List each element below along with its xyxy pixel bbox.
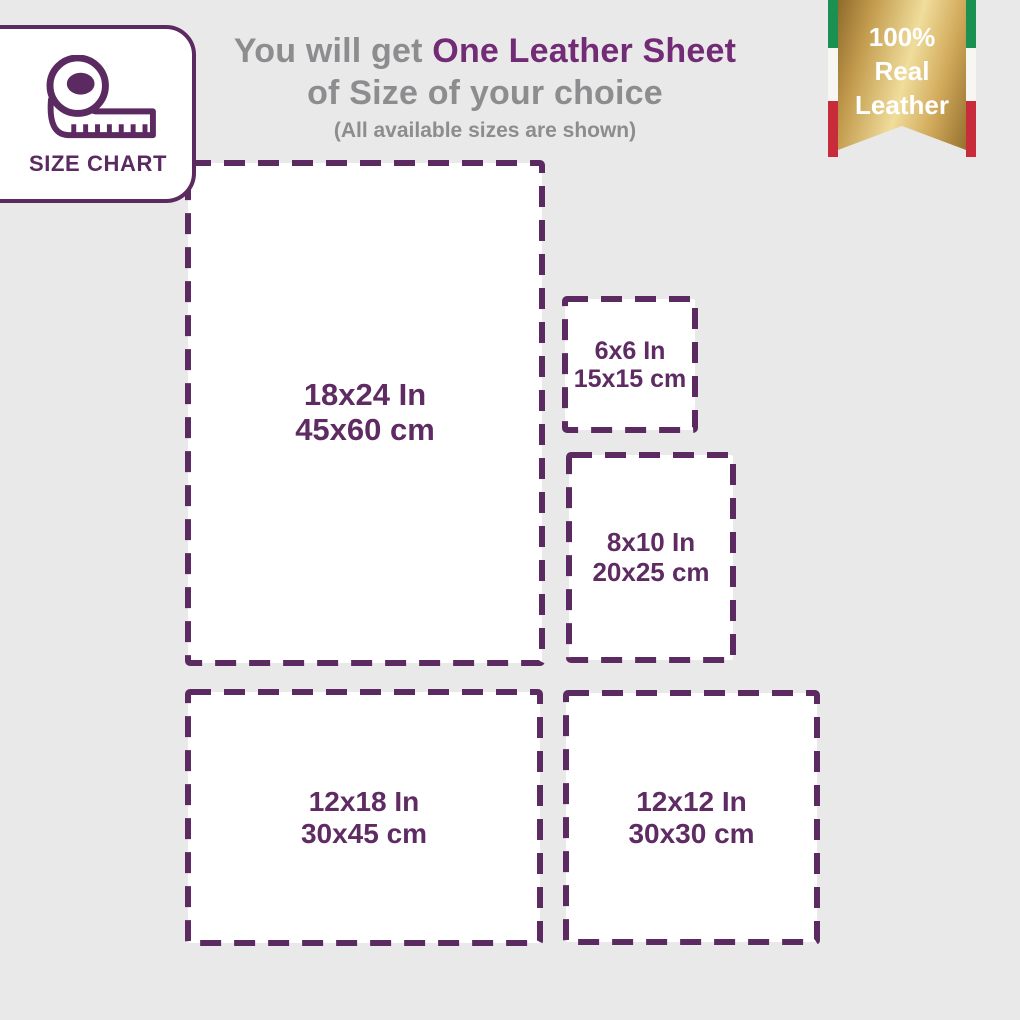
ribbon-line-2: Real (838, 54, 966, 88)
title-block: You will get One Leather Sheet of Size o… (160, 30, 810, 143)
size-inches: 8x10 In (607, 528, 695, 557)
size-inches: 12x18 In (309, 786, 420, 817)
flag-green-segment (966, 0, 976, 48)
italian-flag-stripe-right (966, 0, 976, 157)
size-inches: 18x24 In (304, 378, 426, 413)
size-cm: 30x30 cm (628, 818, 754, 849)
flag-red-segment (966, 101, 976, 157)
size-chart-infographic: You will get One Leather Sheet of Size o… (0, 0, 1020, 1020)
title-line-1: You will get One Leather Sheet (160, 30, 810, 72)
size-box-6x6: 6x6 In 15x15 cm (562, 296, 698, 433)
flag-green-segment (828, 0, 838, 48)
size-label-8x10: 8x10 In 20x25 cm (566, 452, 736, 663)
size-label-18x24: 18x24 In 45x60 cm (185, 160, 545, 666)
size-cm: 30x45 cm (301, 818, 427, 849)
flag-red-segment (828, 101, 838, 157)
size-chart-label: SIZE CHART (29, 151, 167, 177)
title-prefix: You will get (234, 32, 432, 70)
size-label-12x18: 12x18 In 30x45 cm (185, 689, 543, 946)
size-box-18x24: 18x24 In 45x60 cm (185, 160, 545, 666)
size-label-12x12: 12x12 In 30x30 cm (563, 690, 820, 945)
size-chart-card-content: SIZE CHART (4, 29, 192, 199)
ribbon-line-3: Leather (838, 88, 966, 122)
measuring-tape-icon (36, 55, 160, 149)
title-line-2: of Size of your choice (160, 72, 810, 114)
size-cm: 45x60 cm (295, 413, 435, 448)
size-inches: 6x6 In (595, 337, 666, 365)
size-inches: 12x12 In (636, 786, 747, 817)
size-chart-card: SIZE CHART (0, 25, 196, 203)
size-label-6x6: 6x6 In 15x15 cm (562, 296, 698, 433)
flag-white-segment (966, 48, 976, 101)
flag-white-segment (828, 48, 838, 101)
size-box-8x10: 8x10 In 20x25 cm (566, 452, 736, 663)
italian-flag-stripe-left (828, 0, 838, 157)
title-subtitle: (All available sizes are shown) (160, 119, 810, 143)
size-cm: 20x25 cm (592, 558, 709, 587)
ribbon-line-1: 100% (838, 20, 966, 54)
real-leather-ribbon: 100% Real Leather (828, 0, 976, 160)
size-cm: 15x15 cm (574, 365, 687, 393)
gold-banner: 100% Real Leather (838, 0, 966, 150)
size-box-12x12: 12x12 In 30x30 cm (563, 690, 820, 945)
title-highlight: One Leather Sheet (432, 32, 736, 70)
size-box-12x18: 12x18 In 30x45 cm (185, 689, 543, 946)
